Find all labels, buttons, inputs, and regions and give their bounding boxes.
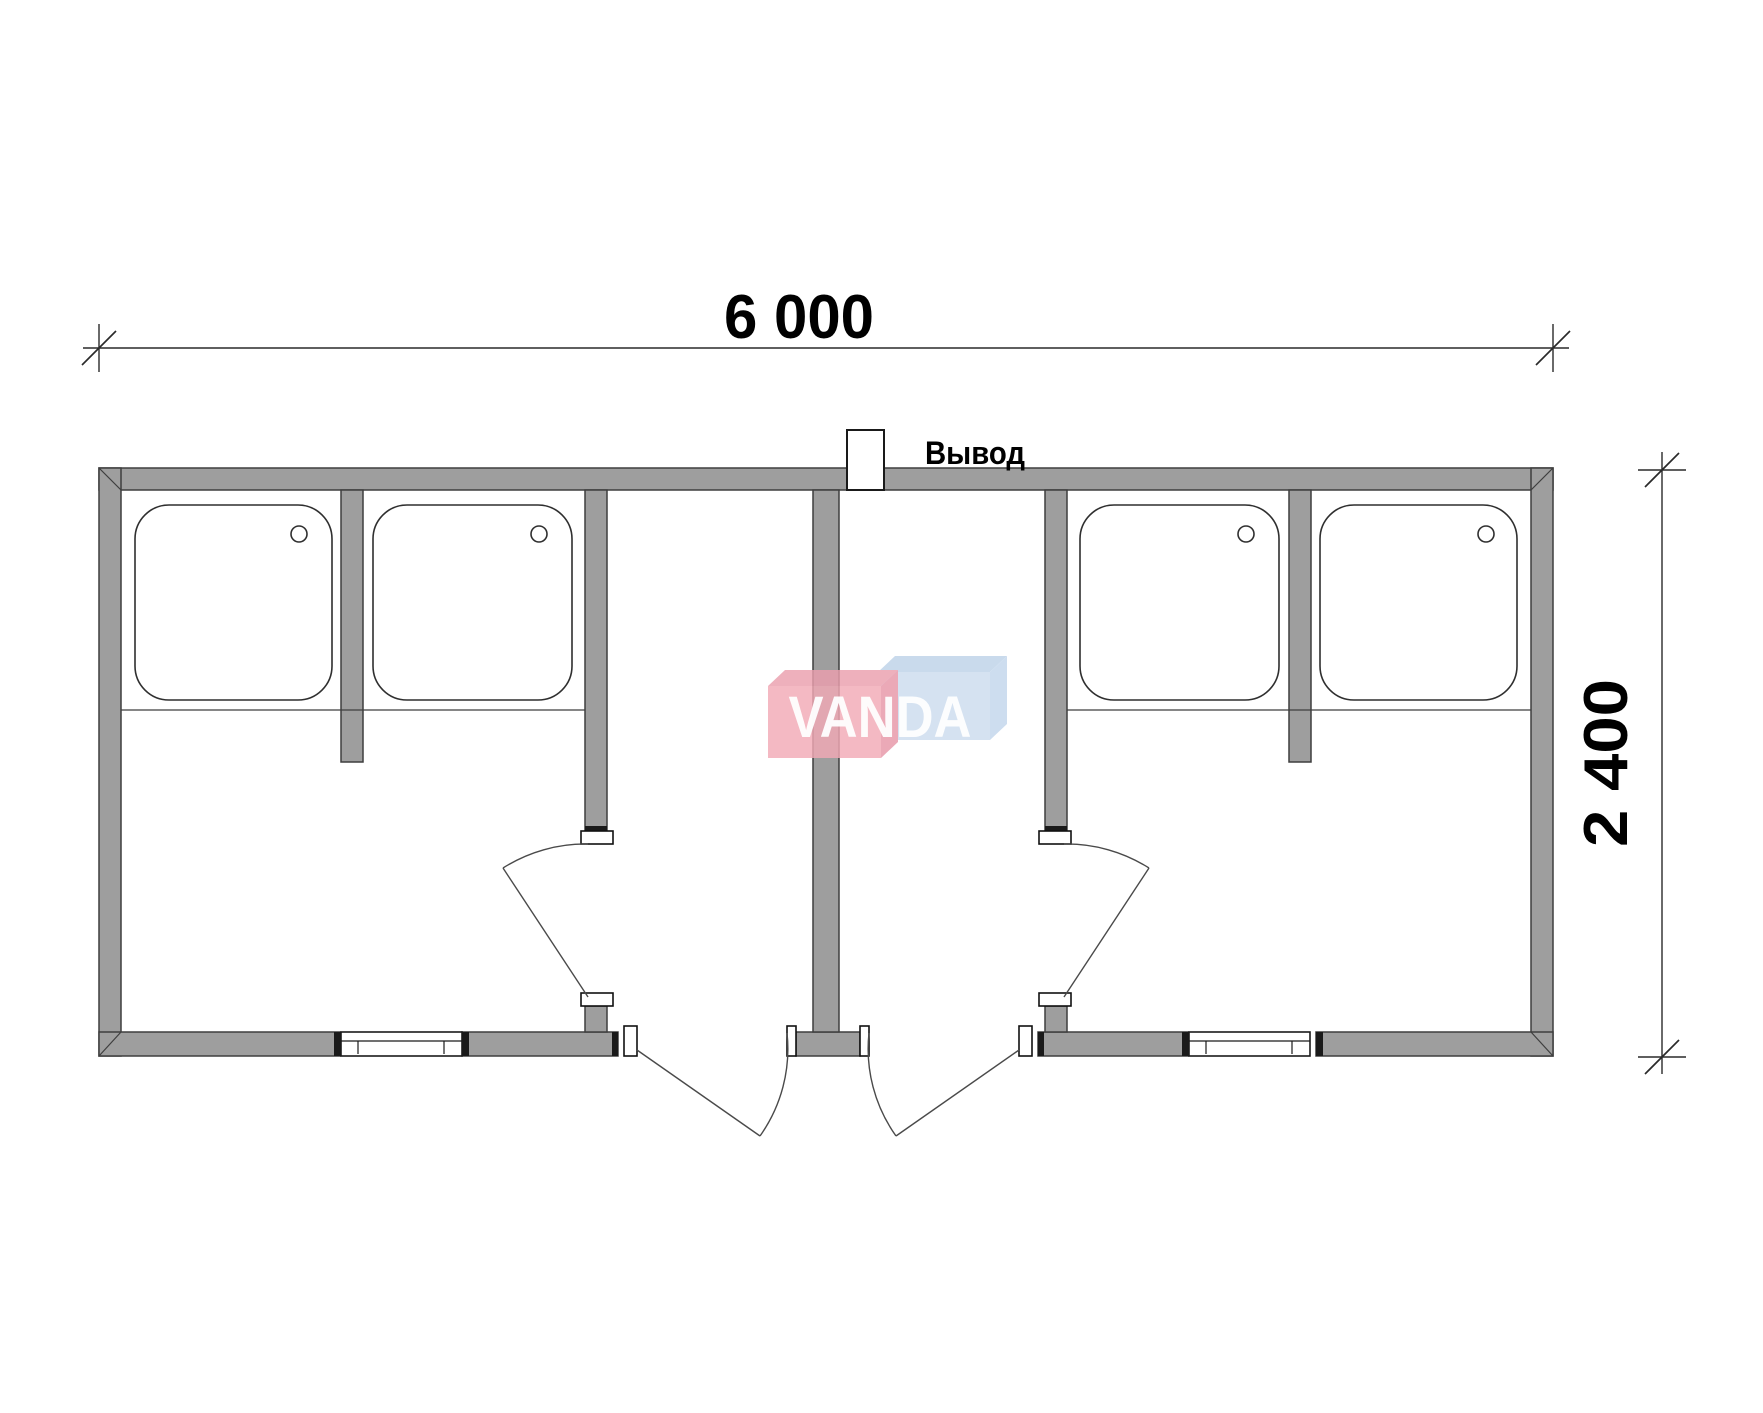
partition-left-upper (585, 490, 607, 831)
wall-right (1531, 468, 1553, 1056)
dimension-height-label: 2 400 (1572, 679, 1641, 847)
wall-bottom-seg3 (1038, 1032, 1188, 1056)
entrance-door-left (637, 1033, 788, 1136)
wall-bottom-center-foot (796, 1032, 860, 1056)
wall-bottom-seg4 (1316, 1032, 1553, 1056)
window-left (341, 1032, 462, 1056)
interior-door-right (1064, 844, 1149, 997)
outlet-box (847, 430, 884, 490)
drain-icon-2 (531, 526, 547, 542)
window-right (1189, 1032, 1310, 1056)
wall-bottom-seg2 (462, 1032, 618, 1056)
outlet-label: Вывод (925, 435, 1025, 471)
partition-right-lower-stub (1045, 1006, 1067, 1032)
entrance-door-right (868, 1033, 1019, 1136)
tray-divider-right (1289, 490, 1311, 762)
dimension-width-label: 6 000 (724, 283, 874, 352)
vanda-watermark-text: VANDA (789, 685, 972, 750)
interior-door-left (503, 844, 588, 997)
partition-right-upper (1045, 490, 1067, 831)
wall-central (813, 490, 839, 1032)
floor-plan-canvas: Вывод 6 000 2 400 VANDA (0, 0, 1763, 1413)
partition-left-lower-stub (585, 1006, 607, 1032)
wall-top (99, 468, 1553, 490)
drain-icon-3 (1238, 526, 1254, 542)
drain-icon-4 (1478, 526, 1494, 542)
wall-left (99, 468, 121, 1056)
drain-icon-1 (291, 526, 307, 542)
wall-bottom-seg1 (99, 1032, 340, 1056)
tray-divider-left (341, 490, 363, 762)
dimension-height (1638, 452, 1686, 1074)
